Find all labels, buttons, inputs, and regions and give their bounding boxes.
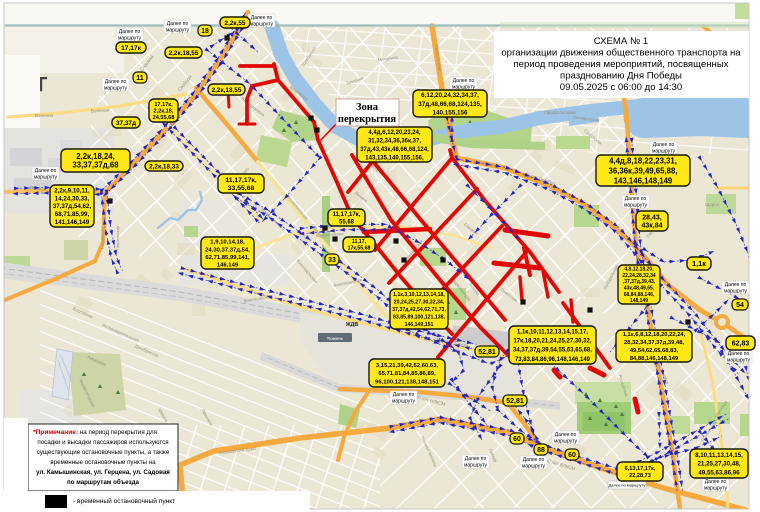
svg-text:ЖДВ: ЖДВ xyxy=(345,322,359,328)
svg-text:маршруту: маршруту xyxy=(392,398,416,404)
svg-text:36,36к,39,49,65,88,: 36,36к,39,49,65,88, xyxy=(609,166,678,175)
svg-text:21,25,27,30,48,: 21,25,27,30,48, xyxy=(697,461,740,468)
svg-text:Далее по: Далее по xyxy=(119,29,141,35)
svg-text:Далее по: Далее по xyxy=(251,15,273,21)
svg-text:маршруту: маршруту xyxy=(704,485,728,491)
svg-text:маршруту: маршруту xyxy=(166,27,190,33)
svg-text:4,8,12,18,20,: 4,8,12,18,20, xyxy=(624,267,654,273)
svg-text:2,2к,55: 2,2к,55 xyxy=(225,20,246,27)
svg-text:11: 11 xyxy=(136,75,144,82)
svg-text:маршруту: маршруту xyxy=(250,21,274,27)
svg-text:22,24,28,32,34: 22,24,28,32,34 xyxy=(622,273,656,279)
svg-text:11,17,: 11,17, xyxy=(352,239,367,245)
svg-text:Далее по: Далее по xyxy=(465,456,487,462)
svg-text:33,55,68: 33,55,68 xyxy=(228,185,255,192)
svg-text:,37,37д,39,43,: ,37,37д,39,43, xyxy=(623,279,656,285)
svg-text:Далее по маршруту: Далее по маршруту xyxy=(609,482,646,487)
svg-text:37д,48,66,68,124,135,: 37д,48,66,68,124,135, xyxy=(418,101,482,108)
svg-text:31,32,34,36,36к,37,: 31,32,34,36,36к,37, xyxy=(368,139,421,145)
svg-text:Далее по: Далее по xyxy=(453,78,475,84)
svg-text:Гаврическая: Гаврическая xyxy=(115,226,120,250)
svg-text:Белинского: Белинского xyxy=(100,226,105,249)
svg-text:маршруту: маршруту xyxy=(724,288,748,294)
svg-text:*Примечание: на период перекры: *Примечание: на период перекрытия для xyxy=(33,429,157,436)
svg-text:маршруту: маршруту xyxy=(464,462,488,468)
svg-text:49,55,63,86,96: 49,55,63,86,96 xyxy=(698,470,740,477)
svg-text:37,37д,42,54,62,71,73,: 37,37д,42,54,62,71,73, xyxy=(392,307,446,313)
svg-text:62,71,85,99,141,: 62,71,85,99,141, xyxy=(205,255,250,261)
svg-text:1,9,10,14,18,: 1,9,10,14,18, xyxy=(210,240,245,246)
svg-text:18: 18 xyxy=(201,28,209,35)
svg-text:62,83: 62,83 xyxy=(732,341,750,348)
svg-text:8,10,11,13,14,15,: 8,10,11,13,14,15, xyxy=(695,452,743,459)
svg-text:ул. Камышинская, ул. Герцена,: ул. Камышинская, ул. Герцена, ул. Садова… xyxy=(36,469,170,476)
svg-text:Далее по: Далее по xyxy=(728,351,750,357)
svg-text:Профсоюзная: Профсоюзная xyxy=(544,110,576,116)
svg-text:49,54,62,65,68,83,: 49,54,62,65,68,83, xyxy=(630,348,679,354)
svg-text:1,1к: 1,1к xyxy=(692,259,706,268)
svg-text:17к,18,20,21,24,25,27,30,32,: 17к,18,20,21,24,25,27,30,32, xyxy=(513,339,591,345)
svg-text:маршруту: маршруту xyxy=(104,85,128,91)
svg-text:по маршрутам объезда: по маршрутам объезда xyxy=(67,479,140,486)
svg-text:96,100,121,138,148,151: 96,100,121,138,148,151 xyxy=(375,379,440,385)
svg-text:2,2к,18,33: 2,2к,18,33 xyxy=(149,163,179,170)
svg-text:148,149: 148,149 xyxy=(630,298,648,304)
svg-text:2,2к,9,10,11,: 2,2к,9,10,11, xyxy=(54,188,90,195)
svg-text:период проведения мероприятий,: период проведения мероприятий, посвященн… xyxy=(513,59,728,70)
svg-text:17,17к: 17,17к xyxy=(121,45,142,52)
svg-text:43к,84: 43к,84 xyxy=(641,222,662,229)
svg-text:4,4д,8,18,22,23,31,: 4,4д,8,18,22,23,31, xyxy=(609,156,677,165)
svg-text:3,15,21,39,42,52,60,63,: 3,15,21,39,42,52,60,63, xyxy=(376,363,439,369)
svg-text:17,17к,: 17,17к, xyxy=(154,102,173,108)
svg-text:6,12,20,24,32,34,37,: 6,12,20,24,32,34,37, xyxy=(421,92,479,99)
svg-text:24,55,68: 24,55,68 xyxy=(153,115,175,121)
svg-text:22,28,73: 22,28,73 xyxy=(629,473,651,479)
svg-text:Далее по: Далее по xyxy=(725,282,747,288)
svg-text:маршруту: маршруту xyxy=(34,174,58,180)
svg-text:маршруту: маршруту xyxy=(522,463,546,469)
svg-text:52,81: 52,81 xyxy=(478,349,496,356)
svg-text:14,24,30,33,: 14,24,30,33, xyxy=(55,195,90,202)
svg-text:146,149,151: 146,149,151 xyxy=(405,322,434,328)
svg-text:Далее по: Далее по xyxy=(167,21,189,27)
svg-text:143,135,140,155,156,: 143,135,140,155,156, xyxy=(365,155,424,161)
svg-text:4,4д,6,12,20,23,24,: 4,4д,6,12,20,23,24, xyxy=(368,130,421,136)
svg-text:существующие остановочные пунк: существующие остановочные пункты, а такж… xyxy=(37,449,170,456)
svg-text:Далее по: Далее по xyxy=(705,479,727,485)
svg-text:24,30,37,37д,54,: 24,30,37,37д,54, xyxy=(205,247,250,253)
svg-text:временные остановочные пункты: временные остановочные пункты на xyxy=(50,459,156,466)
svg-text:28,43,: 28,43, xyxy=(642,215,662,222)
svg-text:маршруту: маршруту xyxy=(118,35,142,41)
svg-text:34,37,37д,39,54,55,63,65,68,: 34,37,37д,39,54,55,63,65,68, xyxy=(513,348,592,354)
svg-text:20,24,25,27,30,32,34,: 20,24,25,27,30,32,34, xyxy=(394,299,445,305)
svg-text:маршруту: маршруту xyxy=(652,148,676,154)
svg-text:43к,48,49,65,: 43к,48,49,65, xyxy=(624,285,655,291)
svg-text:55,68: 55,68 xyxy=(339,219,355,225)
svg-text:73,83,84,86,96,148,146,149: 73,83,84,86,96,148,146,149 xyxy=(515,357,591,363)
svg-text:60: 60 xyxy=(513,436,521,443)
svg-text:перекрытия: перекрытия xyxy=(338,114,397,125)
svg-text:65,71,81,84,85,86,89,: 65,71,81,84,85,86,89, xyxy=(378,371,436,377)
svg-text:Щорса: Щорса xyxy=(705,202,719,207)
svg-text:33,37,37д,68: 33,37,37д,68 xyxy=(72,161,119,170)
svg-text:2,2к,18,: 2,2к,18, xyxy=(154,109,174,115)
svg-text:2,2к,18,24,: 2,2к,18,24, xyxy=(76,152,115,161)
svg-text:Далее по: Далее по xyxy=(523,457,545,463)
svg-text:2,2к,18,55: 2,2к,18,55 xyxy=(169,50,199,57)
svg-text:маршруту: маршруту xyxy=(554,438,578,444)
svg-text:Военния: Военния xyxy=(35,113,54,118)
svg-text:празднованию Дня Победы: празднованию Дня Победы xyxy=(560,71,682,82)
svg-text:68,84,88,146,: 68,84,88,146, xyxy=(624,292,655,298)
svg-text:Далее по: Далее по xyxy=(393,392,415,398)
svg-text:Зона: Зона xyxy=(356,102,379,113)
svg-text:Далее по: Далее по xyxy=(653,142,675,148)
svg-text:09.05.2025 с 06:00 до 14:30: 09.05.2025 с 06:00 до 14:30 xyxy=(560,82,682,93)
svg-text:60: 60 xyxy=(568,452,576,459)
svg-text:17к,55,68: 17к,55,68 xyxy=(348,246,371,252)
svg-text:2,2к,18,55: 2,2к,18,55 xyxy=(212,87,242,94)
svg-text:54: 54 xyxy=(736,302,744,309)
svg-text:Далее по: Далее по xyxy=(105,79,127,85)
svg-text:маршруту: маршруту xyxy=(624,202,648,208)
svg-text:88: 88 xyxy=(537,447,545,454)
svg-text:СХЕМА № 1: СХЕМА № 1 xyxy=(594,36,649,47)
svg-text:146,149: 146,149 xyxy=(217,263,239,269)
svg-text:37,37д,54,62,: 37,37д,54,62, xyxy=(53,203,92,210)
svg-text:140,155,156: 140,155,156 xyxy=(432,109,468,116)
svg-text:33: 33 xyxy=(328,257,336,264)
svg-text:Тюмень: Тюмень xyxy=(327,336,344,341)
svg-text:52,81: 52,81 xyxy=(506,398,524,405)
svg-text:37д,43,43к,48,66,68,124,: 37д,43,43к,48,66,68,124, xyxy=(360,147,429,153)
svg-text:Военная: Военная xyxy=(91,108,110,114)
svg-text:143,146,148,149: 143,146,148,149 xyxy=(614,176,673,185)
svg-text:1,1к,10,11,12,13,14,15,17,: 1,1к,10,11,12,13,14,15,17, xyxy=(517,330,588,336)
svg-text:Далее по: Далее по xyxy=(555,432,577,438)
svg-text:11,17,17к,: 11,17,17к, xyxy=(333,212,361,218)
svg-text:68,71,85,99,: 68,71,85,99, xyxy=(55,211,90,218)
svg-text:6,13,17,17к,: 6,13,17,17к, xyxy=(625,466,656,472)
svg-text:1,1к,6,8,12,18,20,22,24,: 1,1к,6,8,12,18,20,22,24, xyxy=(623,332,686,338)
svg-text:28,32,34,37,37д,39,48,: 28,32,34,37,37д,39,48, xyxy=(624,340,684,346)
svg-text:37,37д: 37,37д xyxy=(116,120,136,127)
svg-text:Далее по: Далее по xyxy=(625,196,647,202)
svg-text:маршруту: маршруту xyxy=(727,357,751,363)
svg-text:- временный остановочный пункт: - временный остановочный пункт xyxy=(73,497,175,505)
svg-text:организации движения обществен: организации движения общественного транс… xyxy=(501,48,741,59)
svg-text:84,88,146,148,149: 84,88,146,148,149 xyxy=(630,356,679,362)
svg-text:83,85,89,100,121,138,: 83,85,89,100,121,138, xyxy=(393,314,445,320)
svg-text:11,17,17к,: 11,17,17к, xyxy=(225,177,256,184)
svg-text:Далее по: Далее по xyxy=(35,168,57,174)
svg-text:посадки и высадки пассажиров и: посадки и высадки пассажиров используютс… xyxy=(37,439,168,446)
svg-text:1,1к,3,10,12,13,14,18,: 1,1к,3,10,12,13,14,18, xyxy=(393,292,445,298)
svg-text:141,146,149: 141,146,149 xyxy=(55,219,90,226)
